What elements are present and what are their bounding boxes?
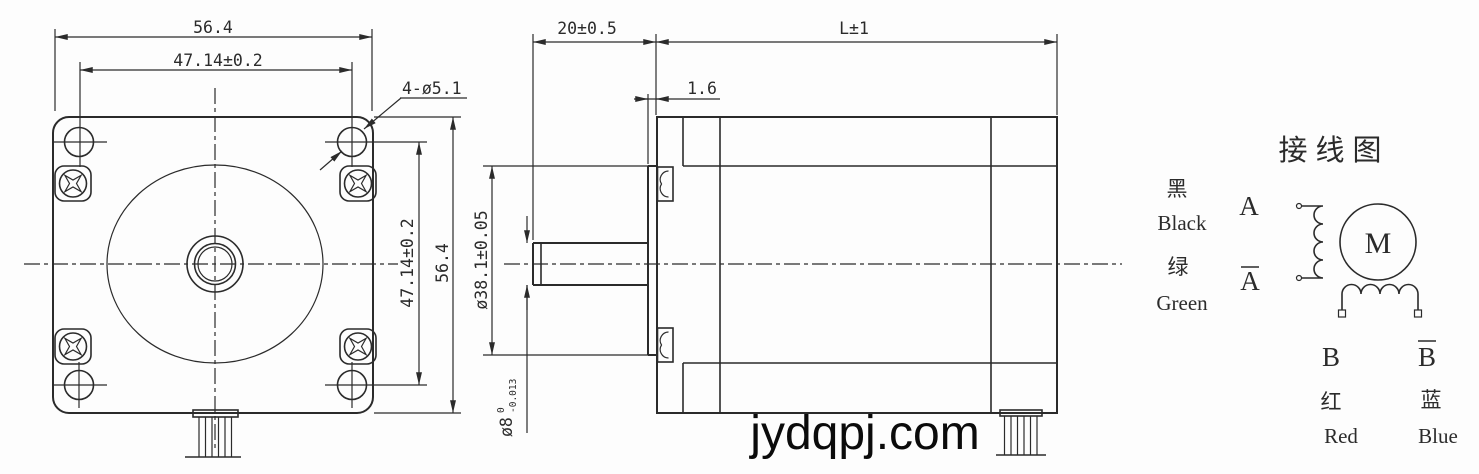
coil-b — [1339, 285, 1422, 318]
dim-label: ø8 — [497, 417, 516, 437]
screw-head-profile — [658, 328, 674, 362]
motor-label: M — [1365, 227, 1392, 260]
dim-shaft-diameter: ø8 0 -0.013 — [496, 216, 527, 437]
dim-label: 47.14±0.2 — [173, 51, 262, 70]
dim-label: 1.6 — [687, 79, 717, 98]
dim-label: 47.14±0.2 — [398, 218, 417, 307]
wire-color-cn-red: 红 — [1321, 390, 1342, 414]
dim-hole-diameter: 4-ø5.1 — [320, 79, 467, 170]
dim-label: L±1 — [839, 19, 869, 38]
side-view: 20±0.5 L±1 1.6 ø38.1±0.05 — [472, 19, 1122, 455]
wire-color-en-green: Green — [1156, 291, 1208, 315]
pilot-boss — [648, 166, 657, 355]
dim-label: 56.4 — [193, 18, 233, 37]
lead-wires-front — [185, 410, 241, 457]
dim-label: 56.4 — [433, 243, 452, 283]
dim-boss-diameter: ø38.1±0.05 — [472, 166, 648, 355]
coil-a — [1297, 204, 1324, 281]
wire-color-en-black: Black — [1158, 211, 1207, 235]
screw-icon — [55, 329, 91, 364]
dim-label: 20±0.5 — [557, 19, 617, 38]
dim-label: ø38.1±0.05 — [472, 210, 491, 309]
dim-front-height: 56.4 — [374, 117, 461, 413]
screw-icon — [340, 166, 376, 201]
lead-wires-side — [996, 410, 1046, 455]
phase-a-bar-label: A — [1240, 266, 1260, 296]
wiring-title: 接线图 — [1278, 133, 1389, 167]
wire-color-en-red: Red — [1324, 424, 1358, 448]
screw-icon — [340, 329, 376, 364]
tolerance-upper: 0 — [496, 407, 507, 413]
front-view: 56.4 47.14±0.2 4-ø5.1 47.14±0.2 56.4 — [24, 18, 467, 457]
wire-color-en-blue: Blue — [1418, 424, 1458, 448]
dim-front-hole-spacing-v: 47.14±0.2 — [398, 142, 419, 385]
front-outline — [53, 117, 373, 413]
motor-body — [657, 117, 1057, 413]
dim-front-hole-spacing-h: 47.14±0.2 — [80, 51, 352, 167]
wire-color-cn-black: 黑 — [1167, 177, 1188, 201]
phase-a-label: A — [1239, 191, 1259, 221]
mounting-holes — [52, 128, 427, 409]
wire-color-cn-green: 绿 — [1168, 255, 1189, 279]
phase-b-bar-label: B — [1418, 342, 1436, 372]
tolerance-lower: -0.013 — [508, 379, 519, 413]
dim-body-length: L±1 — [656, 19, 1057, 115]
dim-shaft-length: 20±0.5 — [533, 19, 656, 240]
screw-icon — [55, 166, 91, 201]
dim-boss-height: 1.6 — [634, 79, 720, 164]
watermark-text: jydqpj.com — [748, 407, 979, 460]
wiring-diagram: 接线图 黑 Black A 绿 Green A M B 红 Red B — [1156, 133, 1457, 448]
phase-b-label: B — [1322, 342, 1340, 372]
wire-color-cn-blue: 蓝 — [1421, 388, 1442, 412]
motor-drawing: 56.4 47.14±0.2 4-ø5.1 47.14±0.2 56.4 — [0, 0, 1479, 474]
dim-label: 4-ø5.1 — [402, 79, 462, 98]
drawing-sheet: 56.4 47.14±0.2 4-ø5.1 47.14±0.2 56.4 — [0, 0, 1479, 474]
screw-head-profile — [658, 167, 674, 201]
